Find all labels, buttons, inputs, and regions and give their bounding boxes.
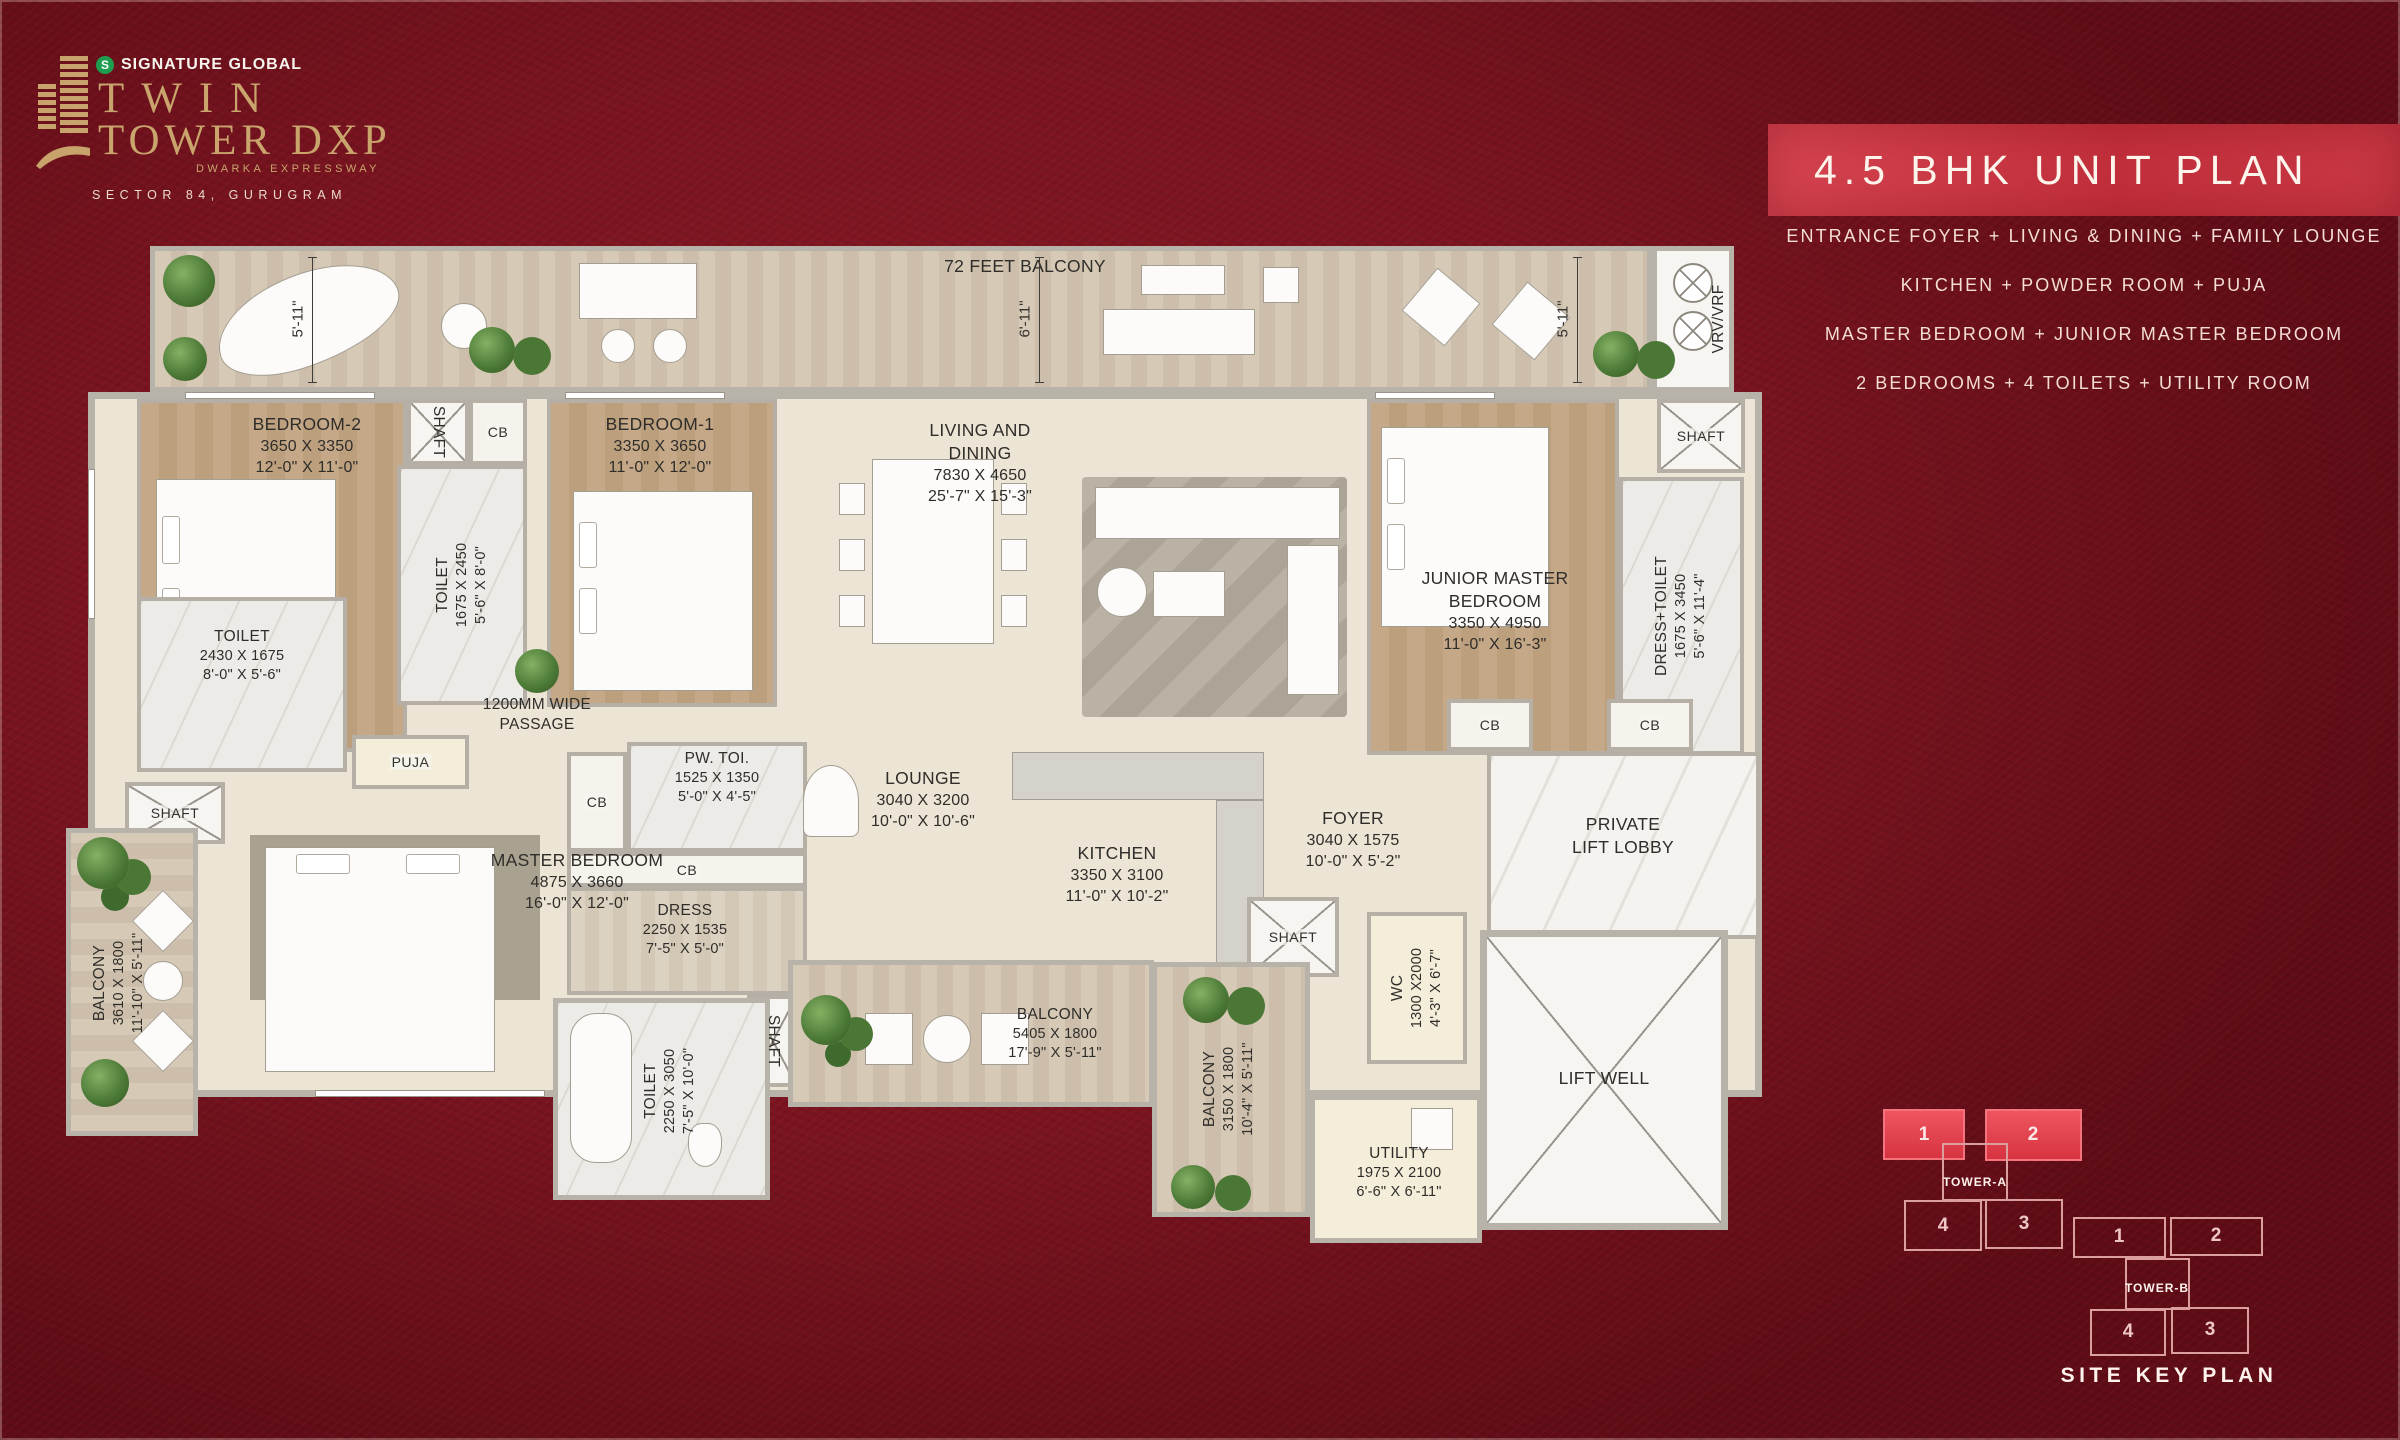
coffee-table: [1153, 571, 1225, 617]
cb-box: CB: [1447, 699, 1533, 751]
dimension-text: 6'-11": [1017, 300, 1034, 337]
feature-line: KITCHEN + POWDER ROOM + PUJA: [1768, 275, 2400, 324]
bottom-balcony-label: BALCONY5405 X 180017'-9" X 5'-11": [1008, 1005, 1102, 1063]
junior-master-label: JUNIOR MASTERBEDROOM 3350 X 495011'-0" X…: [1422, 567, 1569, 655]
round-table: [923, 1015, 971, 1063]
bed: [265, 847, 495, 1072]
master-dress-label: DRESS2250 X 15357'-5" X 5'-0": [643, 901, 727, 959]
toilet-bedroom-1-label: TOILET1675 X 24505'-6" X 8'-0": [433, 543, 491, 627]
bottom-balcony: BALCONY5405 X 180017'-9" X 5'-11": [788, 960, 1154, 1107]
plant: [1593, 331, 1639, 377]
kitchen-counter: [1012, 752, 1264, 800]
wc-label: WC1300 X20004'-3" X 6'-7": [1388, 948, 1446, 1028]
project-name-line2: TOWER DXP: [98, 116, 392, 165]
dimension-text: 5'-11": [1555, 300, 1572, 337]
lift-well-label: LIFT WELL: [1559, 1067, 1650, 1090]
company-name: SIGNATURE GLOBAL: [121, 56, 302, 74]
tower-b-label: TOWER-B: [2125, 1281, 2189, 1295]
company-logo-icon: S: [96, 56, 114, 74]
balcony-chair: [653, 329, 687, 363]
lift-well: LIFT WELL: [1480, 930, 1728, 1230]
feature-line: ENTRANCE FOYER + LIVING & DINING + FAMIL…: [1768, 226, 2400, 275]
left-balcony: BALCONY3610 X 180011'-10" X 5'-11": [66, 828, 198, 1136]
fan-icon: [1673, 311, 1713, 351]
bedroom-1-label: BEDROOM-13350 X 365011'-0" X 12'-0": [606, 413, 715, 478]
bed: [573, 491, 753, 691]
top-balcony: 72 FEET BALCONY 5'-11" 6'-11" 5'-11": [150, 246, 1652, 392]
feature-list: ENTRANCE FOYER + LIVING & DINING + FAMIL…: [1768, 226, 2400, 422]
lounge-label: LOUNGE3040 X 320010'-0" X 10'-6": [871, 767, 975, 832]
side-table: [1263, 267, 1299, 303]
powder-toilet-label: PW. TOI.1525 X 13505'-0" X 4'-5": [675, 749, 759, 807]
master-toilet-label: TOILET2250 X 30507'-5" X 10'-0": [641, 1048, 699, 1134]
puja-label: PUJA: [390, 754, 432, 770]
tower-a-core: [1942, 1143, 2008, 1201]
dimension-text: 5'-11": [290, 300, 307, 337]
title-banner: 4.5 BHK UNIT PLAN: [1768, 124, 2400, 216]
plant: [77, 837, 129, 889]
jr-dress-toilet-label: DRESS+TOILET1675 X 34505'-6" X 11'-4": [1652, 556, 1710, 676]
dimension-line: [1577, 257, 1578, 383]
sofa: [1095, 487, 1340, 539]
plant: [515, 649, 559, 693]
cb-box: CB: [1607, 699, 1693, 751]
feature-line: 2 BEDROOMS + 4 TOILETS + UTILITY ROOM: [1768, 373, 2400, 422]
tower-a-label: TOWER-A: [1943, 1175, 2007, 1189]
armchair: [1097, 567, 1147, 617]
building-logo-icon: [34, 54, 92, 170]
dimension-line: [312, 257, 313, 383]
sun-lounger: [1402, 268, 1481, 347]
window: [88, 469, 95, 619]
plant: [1183, 977, 1229, 1023]
balcony-sofa: [1103, 309, 1255, 355]
right-balcony-label: BALCONY3150 X 180010'-4" X 5'-11": [1200, 1042, 1258, 1136]
project-tagline: DWARKA EXPRESSWAY: [196, 163, 380, 175]
vrv-unit: VRV/VRF: [1652, 246, 1734, 392]
balcony-chair: [865, 1013, 913, 1065]
left-balcony-label: BALCONY3610 X 180011'-10" X 5'-11": [90, 933, 148, 1034]
coffee-table: [1141, 265, 1225, 295]
brochure-page: S SIGNATURE GLOBAL TWIN TOWER DXP DWARKA…: [0, 0, 2400, 1440]
page-title: 4.5 BHK UNIT PLAN: [1814, 147, 2311, 194]
round-table: [143, 961, 183, 1001]
plant: [81, 1059, 129, 1107]
window: [185, 392, 375, 399]
private-lift-lobby-label: PRIVATELIFT LOBBY: [1572, 813, 1674, 859]
site-key-plan: 1 2 TOWER-A 4 3 1 2 TOWER-B 4 3 SITE KEY…: [1880, 1085, 2360, 1405]
armchair: [803, 765, 859, 837]
toilet-bedroom-2-label: TOILET2430 X 16758'-0" X 5'-6": [200, 627, 284, 685]
dining-chair: [1001, 595, 1027, 627]
plant: [1171, 1165, 1215, 1209]
project-location: SECTOR 84, GURUGRAM: [92, 188, 347, 202]
utility-room: UTILITY1975 X 21006'-6" X 6'-11": [1310, 1095, 1482, 1243]
kitchen-label: KITCHEN3350 X 310011'-0" X 10'-2": [1066, 842, 1169, 907]
shaft-label: SHAFT: [763, 1015, 783, 1067]
dining-chair: [839, 483, 865, 515]
foyer-label: FOYER3040 X 157510'-0" X 5'-2": [1306, 807, 1401, 872]
passage-label: 1200MM WIDEPASSAGE: [483, 695, 591, 735]
plant: [163, 337, 207, 381]
lounge-sofa: [203, 246, 412, 392]
dimension-line: [1039, 257, 1040, 383]
shaft-box: SHAFT: [1657, 399, 1745, 473]
window: [1375, 392, 1495, 399]
right-balcony: BALCONY3150 X 180010'-4" X 5'-11": [1152, 962, 1310, 1217]
plant: [469, 327, 515, 373]
bathtub: [570, 1013, 632, 1163]
shaft-label: SHAFT: [428, 406, 448, 458]
site-key-plan-caption: SITE KEY PLAN: [2061, 1364, 2278, 1388]
sofa: [1287, 545, 1339, 695]
cb-box: CB: [469, 399, 527, 465]
top-balcony-label: 72 FEET BALCONY: [944, 255, 1106, 278]
dining-chair: [1001, 539, 1027, 571]
master-bedroom-label: MASTER BEDROOM4875 X 366016'-0" X 12'-0": [491, 849, 663, 914]
bedroom-2-label: BEDROOM-23650 X 335012'-0" X 11'-0": [253, 413, 362, 478]
window: [315, 1090, 545, 1097]
puja-room: PUJA: [352, 735, 469, 789]
balcony-chair: [601, 329, 635, 363]
fan-icon: [1673, 263, 1713, 303]
living-dining-label: LIVING ANDDINING 7830 X 465025'-7" X 15'…: [928, 419, 1032, 507]
vrv-label: VRV/VRF: [1709, 285, 1729, 354]
dining-chair: [839, 539, 865, 571]
feature-line: MASTER BEDROOM + JUNIOR MASTER BEDROOM: [1768, 324, 2400, 373]
cb-box: CB: [567, 752, 627, 852]
window: [565, 392, 725, 399]
company-row: S SIGNATURE GLOBAL: [96, 56, 302, 74]
dining-chair: [839, 595, 865, 627]
master-toilet: TOILET2250 X 30507'-5" X 10'-0": [553, 998, 770, 1200]
utility-label: UTILITY1975 X 21006'-6" X 6'-11": [1356, 1144, 1441, 1202]
balcony-table: [579, 263, 697, 319]
plant: [801, 995, 851, 1045]
plant: [163, 255, 215, 307]
